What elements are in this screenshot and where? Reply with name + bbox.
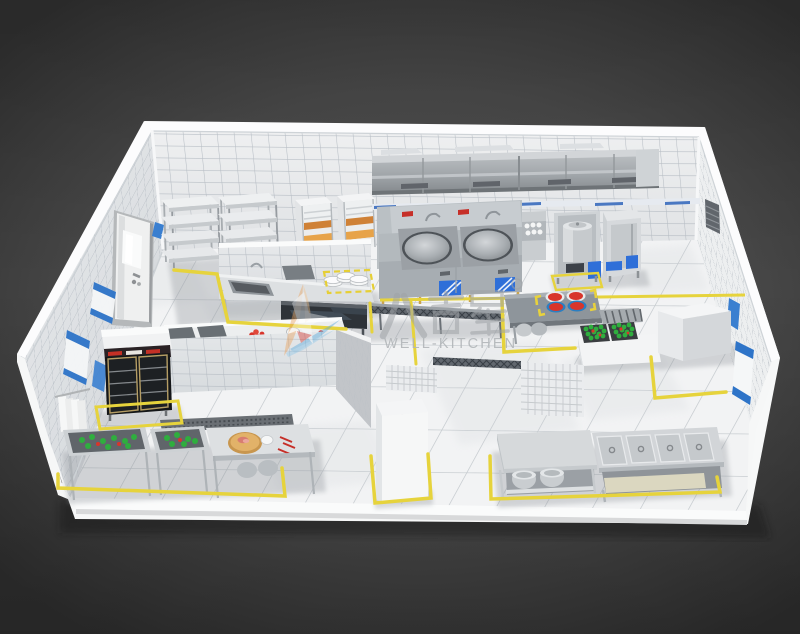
svg-text:WELL-KITCHEN: WELL-KITCHEN bbox=[384, 336, 517, 352]
